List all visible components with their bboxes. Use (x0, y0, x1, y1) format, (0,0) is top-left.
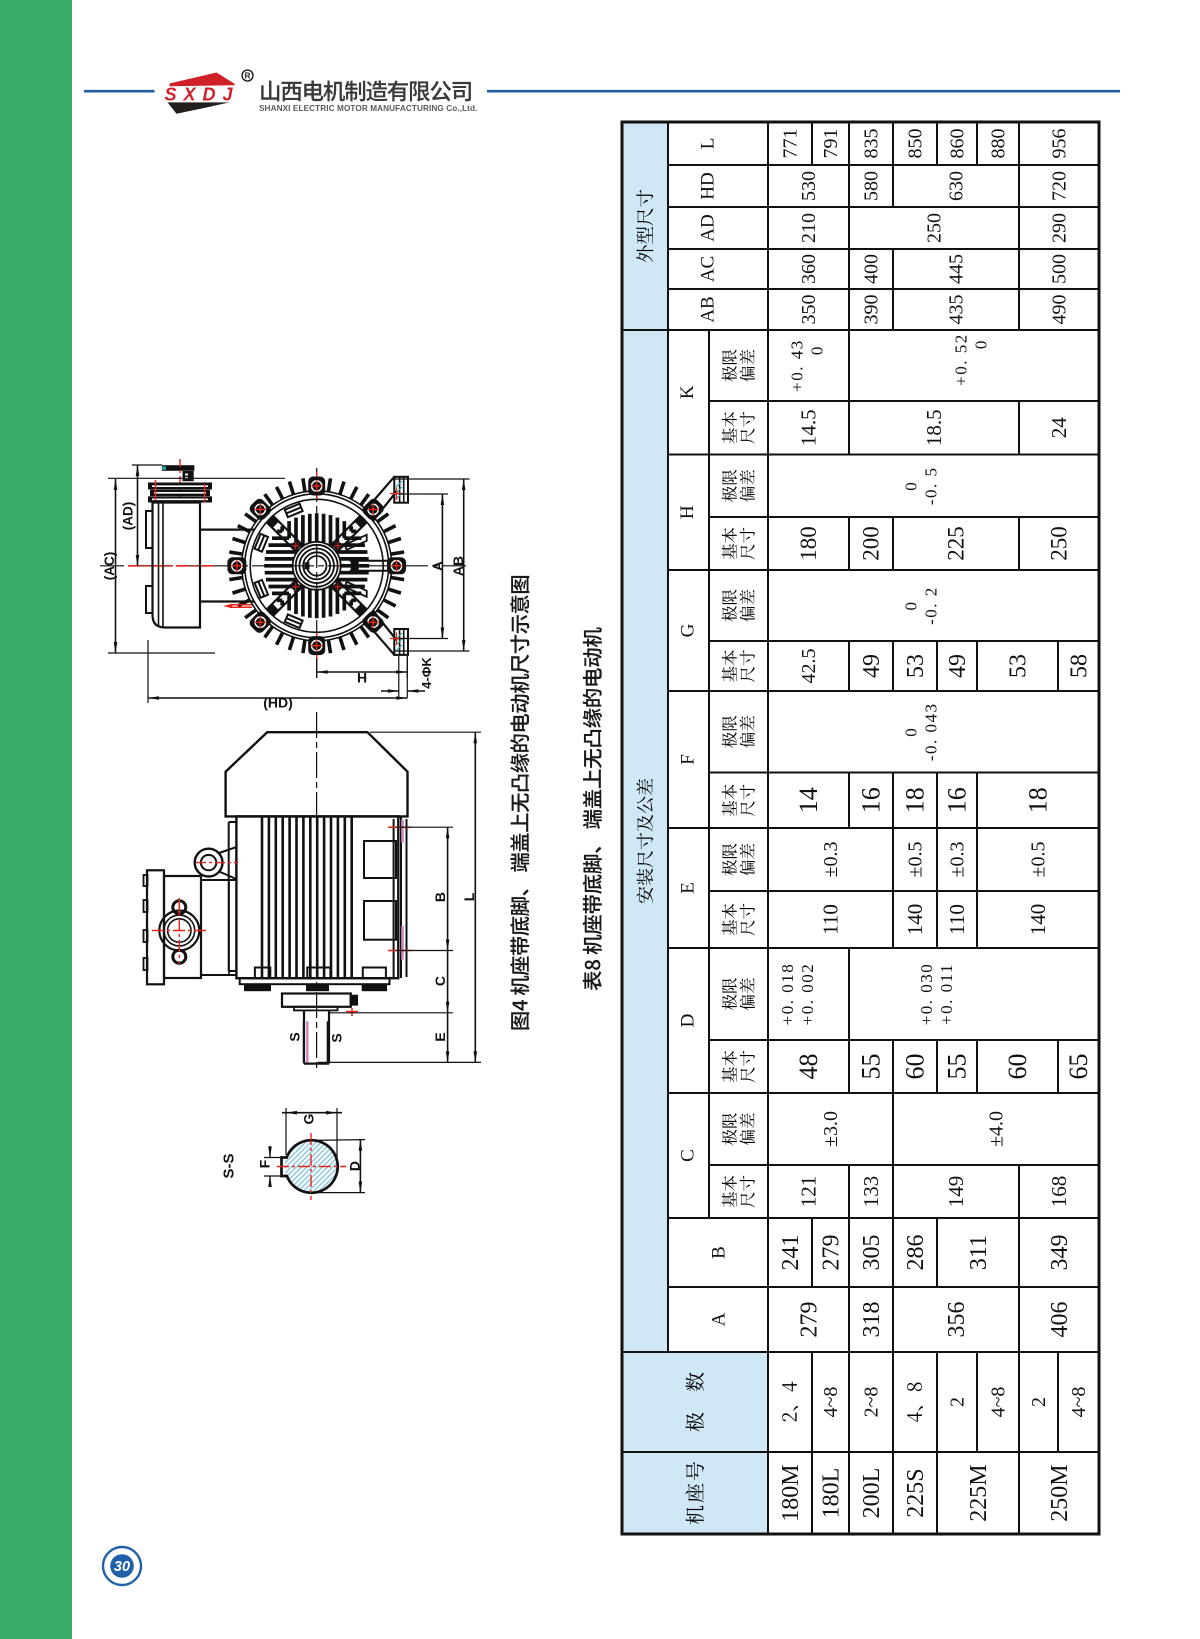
svg-text:G: G (301, 1113, 317, 1124)
svg-text:-0. 2: -0. 2 (922, 586, 941, 625)
svg-text:250: 250 (924, 213, 946, 243)
svg-text:140: 140 (903, 904, 927, 936)
svg-text:14.5: 14.5 (796, 409, 820, 446)
svg-text:58: 58 (1066, 654, 1092, 678)
svg-text:+0. 52: +0. 52 (952, 333, 971, 386)
svg-text:279: 279 (818, 1235, 844, 1271)
svg-text:490: 490 (1049, 295, 1071, 325)
svg-text:+0. 002: +0. 002 (798, 963, 817, 1026)
svg-text:350: 350 (798, 295, 820, 325)
svg-text:18: 18 (901, 787, 930, 813)
svg-text:4-ΦK: 4-ΦK (419, 657, 434, 689)
svg-text:G: G (677, 623, 698, 637)
svg-text:+0. 018: +0. 018 (778, 963, 797, 1026)
svg-text:±0.3: ±0.3 (820, 842, 842, 878)
svg-text:S: S (287, 1032, 303, 1041)
svg-text:110: 110 (818, 904, 842, 935)
svg-text:H: H (357, 670, 367, 686)
svg-text:200L: 200L (859, 1468, 885, 1519)
svg-text:+0. 030: +0. 030 (917, 963, 936, 1026)
svg-text:241: 241 (778, 1235, 804, 1271)
svg-text:390: 390 (861, 295, 883, 325)
svg-text:110: 110 (945, 904, 969, 935)
svg-text:18: 18 (1024, 787, 1053, 813)
svg-text:290: 290 (1049, 213, 1071, 243)
svg-text:L: L (697, 138, 718, 150)
svg-text:B: B (432, 892, 448, 902)
svg-text:0: 0 (972, 339, 991, 349)
svg-text:149: 149 (944, 1176, 968, 1208)
svg-text:791: 791 (820, 129, 842, 159)
svg-text:445: 445 (946, 254, 968, 284)
svg-text:(HD): (HD) (263, 695, 293, 711)
svg-text:835: 835 (861, 129, 883, 159)
svg-text:60: 60 (1003, 1053, 1032, 1079)
svg-text:A: A (429, 561, 445, 571)
svg-text:356: 356 (944, 1302, 970, 1338)
svg-text:±0.5: ±0.5 (905, 842, 927, 878)
svg-text:K: K (677, 385, 698, 399)
svg-text:±0.3: ±0.3 (947, 842, 969, 878)
svg-text:0: 0 (902, 481, 921, 491)
svg-text:±4.0: ±4.0 (986, 1111, 1008, 1147)
svg-text:AB: AB (450, 556, 466, 576)
svg-text:24: 24 (1047, 417, 1071, 439)
svg-text:B: B (708, 1246, 729, 1259)
svg-text:168: 168 (1047, 1176, 1071, 1208)
svg-text:55: 55 (857, 1053, 886, 1079)
svg-text:250M: 250M (1047, 1464, 1073, 1521)
svg-text:250: 250 (1047, 526, 1072, 561)
svg-text:C: C (677, 1149, 698, 1162)
svg-text:H: H (677, 505, 698, 519)
svg-text:180M: 180M (778, 1464, 804, 1521)
svg-text:30: 30 (114, 1559, 130, 1575)
svg-text:121: 121 (796, 1176, 820, 1208)
svg-text:4~8: 4~8 (820, 1387, 842, 1418)
svg-text:400: 400 (861, 254, 883, 284)
svg-text:880: 880 (988, 129, 1010, 159)
svg-text:(AD): (AD) (121, 502, 136, 531)
svg-text:55: 55 (943, 1053, 972, 1079)
svg-text:+0. 43: +0. 43 (788, 339, 807, 392)
svg-text:E: E (432, 1032, 448, 1041)
svg-text:60: 60 (901, 1053, 930, 1079)
svg-text:305: 305 (859, 1235, 885, 1271)
svg-text:F: F (257, 1159, 273, 1168)
svg-text:406: 406 (1047, 1302, 1073, 1338)
svg-text:±0.5: ±0.5 (1028, 842, 1050, 878)
svg-text:311: 311 (966, 1235, 992, 1270)
svg-text:225: 225 (944, 526, 969, 561)
svg-text:2~8: 2~8 (861, 1387, 883, 1418)
svg-text:580: 580 (861, 171, 883, 201)
svg-text:360: 360 (798, 254, 820, 284)
svg-text:S: S (329, 1033, 345, 1042)
svg-text:0: 0 (902, 601, 921, 611)
svg-text:0: 0 (808, 345, 827, 355)
svg-text:14: 14 (794, 787, 823, 813)
svg-text:530: 530 (798, 171, 820, 201)
svg-text:49: 49 (859, 654, 885, 678)
svg-text:225S: 225S (903, 1468, 929, 1517)
svg-text:850: 850 (905, 129, 927, 159)
svg-text:0: 0 (902, 727, 921, 737)
svg-text:D: D (677, 1014, 698, 1028)
svg-text:SXDJ: SXDJ (164, 85, 239, 105)
svg-text:S-S: S-S (221, 1153, 238, 1178)
svg-text:48: 48 (794, 1053, 823, 1079)
svg-text:HD: HD (697, 172, 718, 199)
svg-text:AD: AD (697, 214, 718, 241)
svg-text:140: 140 (1026, 904, 1050, 936)
svg-text:-0. 5: -0. 5 (922, 466, 941, 505)
svg-text:16: 16 (857, 787, 886, 813)
svg-text:F: F (677, 754, 698, 765)
svg-text:2: 2 (1028, 1397, 1050, 1407)
svg-text:16: 16 (943, 787, 972, 813)
svg-text:E: E (677, 882, 698, 894)
svg-text:49: 49 (945, 654, 971, 678)
svg-text:180L: 180L (818, 1468, 844, 1519)
svg-text:956: 956 (1049, 129, 1071, 159)
svg-text:180: 180 (796, 526, 821, 561)
svg-text:2: 2 (947, 1397, 969, 1407)
svg-text:AB: AB (697, 296, 718, 322)
svg-text:435: 435 (946, 295, 968, 325)
svg-text:65: 65 (1064, 1053, 1093, 1079)
svg-text:133: 133 (859, 1176, 883, 1208)
svg-text:860: 860 (947, 129, 969, 159)
svg-text:53: 53 (903, 654, 929, 678)
svg-text:210: 210 (798, 213, 820, 243)
svg-text:C: C (432, 976, 448, 986)
svg-text:225M: 225M (966, 1464, 992, 1521)
svg-text:(AC): (AC) (102, 552, 117, 581)
svg-text:-0. 043: -0. 043 (922, 702, 941, 761)
svg-text:200: 200 (859, 526, 884, 561)
svg-text:500: 500 (1049, 254, 1071, 284)
svg-text:18.5: 18.5 (922, 409, 946, 446)
svg-text:318: 318 (859, 1302, 885, 1338)
svg-text:R: R (245, 72, 251, 81)
svg-text:4~8: 4~8 (988, 1387, 1010, 1418)
svg-text:53: 53 (1005, 654, 1031, 678)
svg-text:AC: AC (697, 256, 718, 282)
svg-text:349: 349 (1047, 1235, 1073, 1271)
svg-text:±3.0: ±3.0 (820, 1111, 842, 1147)
svg-text:720: 720 (1049, 171, 1071, 201)
svg-text:279: 279 (796, 1302, 822, 1338)
svg-text:L: L (461, 892, 477, 901)
svg-text:D: D (347, 1161, 363, 1171)
svg-text:SHANXI ELECTRIC MOTOR MANUF: SHANXI ELECTRIC MOTOR MANUFACTURING Co.,… (259, 104, 477, 113)
svg-text:771: 771 (780, 129, 802, 159)
svg-text:42.5: 42.5 (798, 649, 820, 684)
svg-text:286: 286 (903, 1235, 929, 1271)
svg-text:4~8: 4~8 (1068, 1387, 1090, 1418)
svg-text:630: 630 (946, 171, 968, 201)
svg-text:+0. 011: +0. 011 (937, 963, 956, 1025)
svg-text:A: A (708, 1312, 729, 1326)
